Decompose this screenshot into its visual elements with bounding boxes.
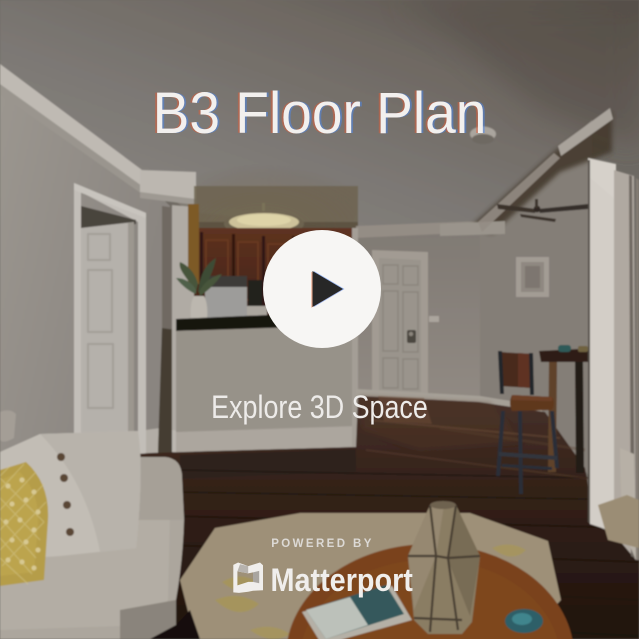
svg-text:Matterport: Matterport	[270, 563, 412, 599]
